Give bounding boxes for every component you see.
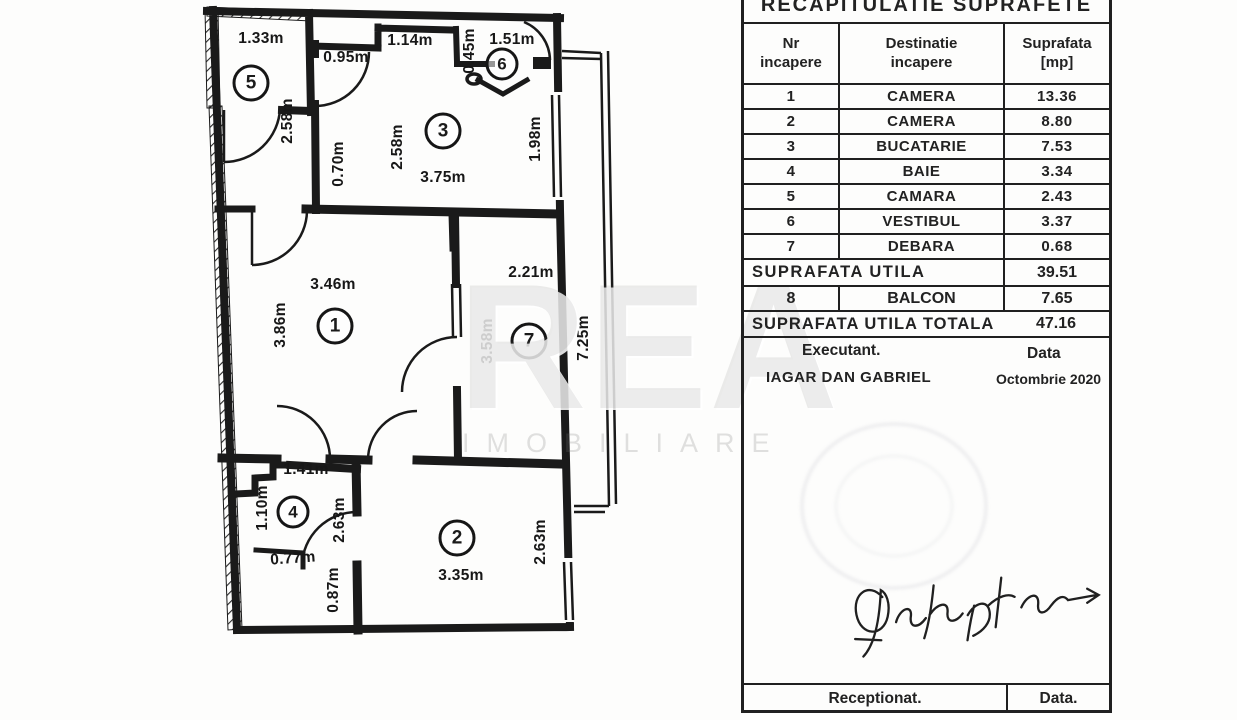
dim-label-r3-mid-top: 1.14m [387,32,432,50]
col-header-destinatie: Destinatie incapere [838,24,1003,83]
total-label: SUPRAFATA UTILA TOTALA [744,312,1003,336]
dim-label-r3-bottom: 3.75m [420,169,465,187]
table-header-row: Nr incapere Destinatie incapere Suprafat… [744,24,1109,85]
scanned-document-page: { "plan": { "circles": { "c1":"1","c2":"… [0,0,1237,720]
executant-section: Executant. Data IAGAR DAN GABRIEL Octomb… [744,338,1109,685]
room-circle-5: 5 [233,65,270,102]
col-header-nr-line2: incapere [760,54,822,73]
receptionat-label: Receptionat. [744,685,1006,713]
row-nr: 6 [744,210,838,233]
row-area: 3.34 [1003,160,1109,183]
room-circle-1: 1 [317,308,354,345]
row-area: 13.36 [1003,85,1109,108]
row-dest: CAMARA [838,185,1003,208]
row-dest: BUCATARIE [838,135,1003,158]
row-area: 7.53 [1003,135,1109,158]
suprafata-utila-row: SUPRAFATA UTILA 39.51 [744,260,1109,287]
room-circle-3: 3 [425,113,462,150]
table-row: 3 BUCATARIE 7.53 [744,135,1109,160]
dim-label-r3-window: 1.98m [527,116,545,161]
room-circle-6: 6 [486,48,519,81]
dim-label-r1-left: 3.86m [272,302,290,347]
row-dest: CAMERA [838,110,1003,133]
table-row: 6 VESTIBUL 3.37 [744,210,1109,235]
row-nr: 7 [744,235,838,258]
utila-label: SUPRAFATA UTILA [744,260,1003,285]
receptionat-data-label: Data. [1006,685,1109,713]
signature [852,571,1102,657]
col-header-sup-line1: Suprafata [1022,35,1091,54]
dim-label-r1-top: 3.46m [310,276,355,294]
dim-label-r4-top: 1.41m [283,461,328,479]
row-dest: BAIE [838,160,1003,183]
watermark-subtitle: IMOBILIARE [462,428,787,459]
table-row: 2 CAMERA 8.80 [744,110,1109,135]
balcon-area: 7.65 [1003,287,1109,310]
stamp-and-signature [744,338,1109,683]
dim-label-r3-left-top: 0.95m [323,49,368,67]
row-nr: 4 [744,160,838,183]
row-dest: DEBARA [838,235,1003,258]
dim-label-r4-left: 1.10m [254,485,272,530]
col-header-sup-line2: [mp] [1041,54,1074,73]
dim-label-r4-right: 2.63m [331,497,349,542]
table-row: 1 CAMERA 13.36 [744,85,1109,110]
row-nr: 1 [744,85,838,108]
row-area: 2.43 [1003,185,1109,208]
row-area: 0.68 [1003,235,1109,258]
col-header-nr-line1: Nr [783,35,800,54]
table-row: 4 BAIE 3.34 [744,160,1109,185]
dim-label-r6-left: 0.45m [461,28,479,73]
balcon-nr: 8 [744,287,838,310]
area-summary-table: RECAPITULATIE SUPRAFETE Nr incapere Dest… [741,0,1112,713]
table-row: 7 DEBARA 0.68 [744,235,1109,260]
row-area: 3.37 [1003,210,1109,233]
dim-label-r5-right: 2.58m [279,98,297,143]
dim-label-r2-right: 2.63m [532,519,550,564]
dim-label-r5-top: 1.33m [238,30,283,48]
col-header-nr: Nr incapere [744,24,838,83]
room-circle-2: 2 [439,520,476,557]
row-dest: CAMERA [838,85,1003,108]
dim-label-r3-left: 2.58m [389,124,407,169]
stamp-icon [802,424,986,588]
balcon-row: 8 BALCON 7.65 [744,287,1109,312]
col-header-dest-line1: Destinatie [886,35,958,54]
row-dest: VESTIBUL [838,210,1003,233]
dim-label-r6-top: 1.51m [489,31,534,49]
table-title-text: RECAPITULATIE SUPRAFETE [744,0,1109,17]
table-title: RECAPITULATIE SUPRAFETE [744,0,1109,24]
receptionat-row: Receptionat. Data. [744,685,1109,713]
row-area: 8.80 [1003,110,1109,133]
utila-value: 39.51 [1003,260,1109,285]
dim-label-r2-bottom: 3.35m [438,567,483,585]
dim-label-r4-bottom: 0.87m [325,567,343,612]
col-header-suprafata: Suprafata [mp] [1003,24,1109,83]
row-nr: 5 [744,185,838,208]
row-nr: 2 [744,110,838,133]
table-row: 5 CAMARA 2.43 [744,185,1109,210]
dim-label-r3-door: 0.70m [330,141,348,186]
balcon-dest: BALCON [838,287,1003,310]
dim-label-r4-step: 0.77m [270,548,317,569]
col-header-dest-line2: incapere [891,54,953,73]
room-circle-4: 4 [277,496,310,529]
total-row: SUPRAFATA UTILA TOTALA 47.16 [744,312,1109,338]
row-nr: 3 [744,135,838,158]
total-value: 47.16 [1003,312,1109,336]
